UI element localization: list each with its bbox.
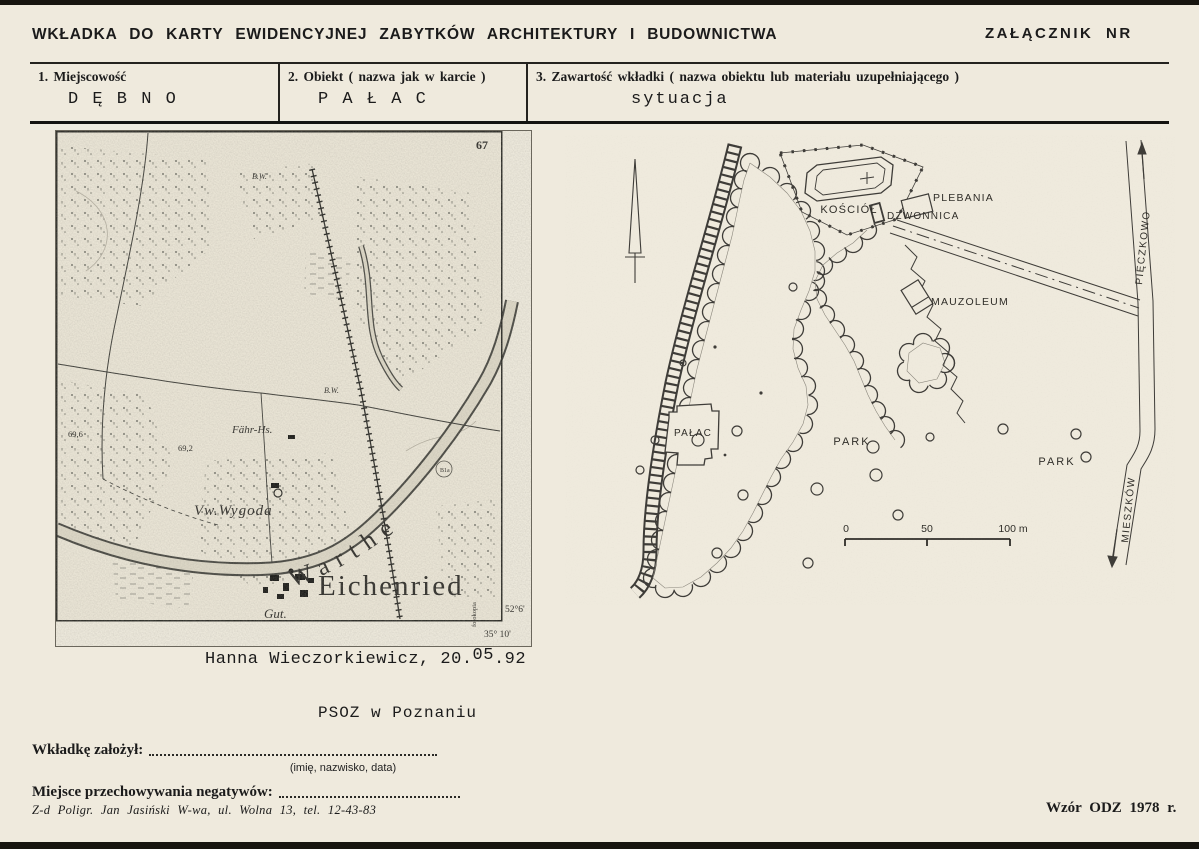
field-label: 3. Zawartość wkładki ( nazwa obiektu lub… <box>536 69 1161 85</box>
plan-grain <box>565 135 1175 605</box>
fields-table: 1. Miejscowość D Ę B N O 2. Obiekt ( naz… <box>30 62 1169 124</box>
field-value: P A Ł A C <box>318 90 518 109</box>
historic-map-image: 67 Fähr-Hs. 69,6 69,2 B.W. B.W. B1a Vw.W… <box>55 130 532 647</box>
dotted-line <box>279 784 460 798</box>
founder-hint: (imię, nazwisko, data) <box>238 762 448 774</box>
site-plan-svg: 0 50 100 m KOŚCIÓŁ DZWONNICA PLEBANIA MA… <box>565 135 1175 605</box>
founder-row: Wkładkę założył: <box>32 742 437 759</box>
field-label: 2. Obiekt ( nazwa jak w karcie ) <box>288 69 518 85</box>
site-plan: 0 50 100 m KOŚCIÓŁ DZWONNICA PLEBANIA MA… <box>565 135 1175 605</box>
field-zawartosc: 3. Zawartość wkładki ( nazwa obiektu lub… <box>528 64 1169 121</box>
author-prefix: Hanna Wieczorkiewicz, 20. <box>205 650 473 669</box>
page-title: WKŁADKA DO KARTY EWIDENCYJNEJ ZABYTKÓW A… <box>32 26 777 44</box>
form-code: Wzór ODZ 1978 r. <box>1046 800 1176 817</box>
author-suffix: .92 <box>494 650 526 669</box>
annex-label: ZAŁĄCZNIK NR <box>985 25 1133 42</box>
field-miejscowosc: 1. Miejscowość D Ę B N O <box>30 64 280 121</box>
scan-edge-bottom <box>0 842 1199 849</box>
scan-edge-top <box>0 0 1199 5</box>
field-value: D Ę B N O <box>68 90 270 109</box>
field-label: 1. Miejscowość <box>38 69 270 85</box>
printer-imprint: Z-d Poligr. Jan Jasiński W-wa, ul. Wolna… <box>32 803 376 818</box>
founder-label: Wkładkę założył: <box>32 742 143 759</box>
author-line: Hanna Wieczorkiewicz, 20.05.92 <box>205 650 526 669</box>
negatives-label: Miejsce przechowywania negatywów: <box>32 784 273 801</box>
institution-line: PSOZ w Poznaniu <box>318 704 477 722</box>
dotted-line <box>149 742 437 756</box>
field-obiekt: 2. Obiekt ( nazwa jak w karcie ) P A Ł A… <box>280 64 528 121</box>
negatives-row: Miejsce przechowywania negatywów: <box>32 784 460 801</box>
historic-map-svg: 67 Fähr-Hs. 69,6 69,2 B.W. B.W. B1a Vw.W… <box>56 131 531 646</box>
map-grain <box>56 131 531 646</box>
author-month-correction: 05 <box>473 646 494 665</box>
document-page: WKŁADKA DO KARTY EWIDENCYJNEJ ZABYTKÓW A… <box>0 0 1199 849</box>
field-value: sytuacja <box>631 90 1161 109</box>
